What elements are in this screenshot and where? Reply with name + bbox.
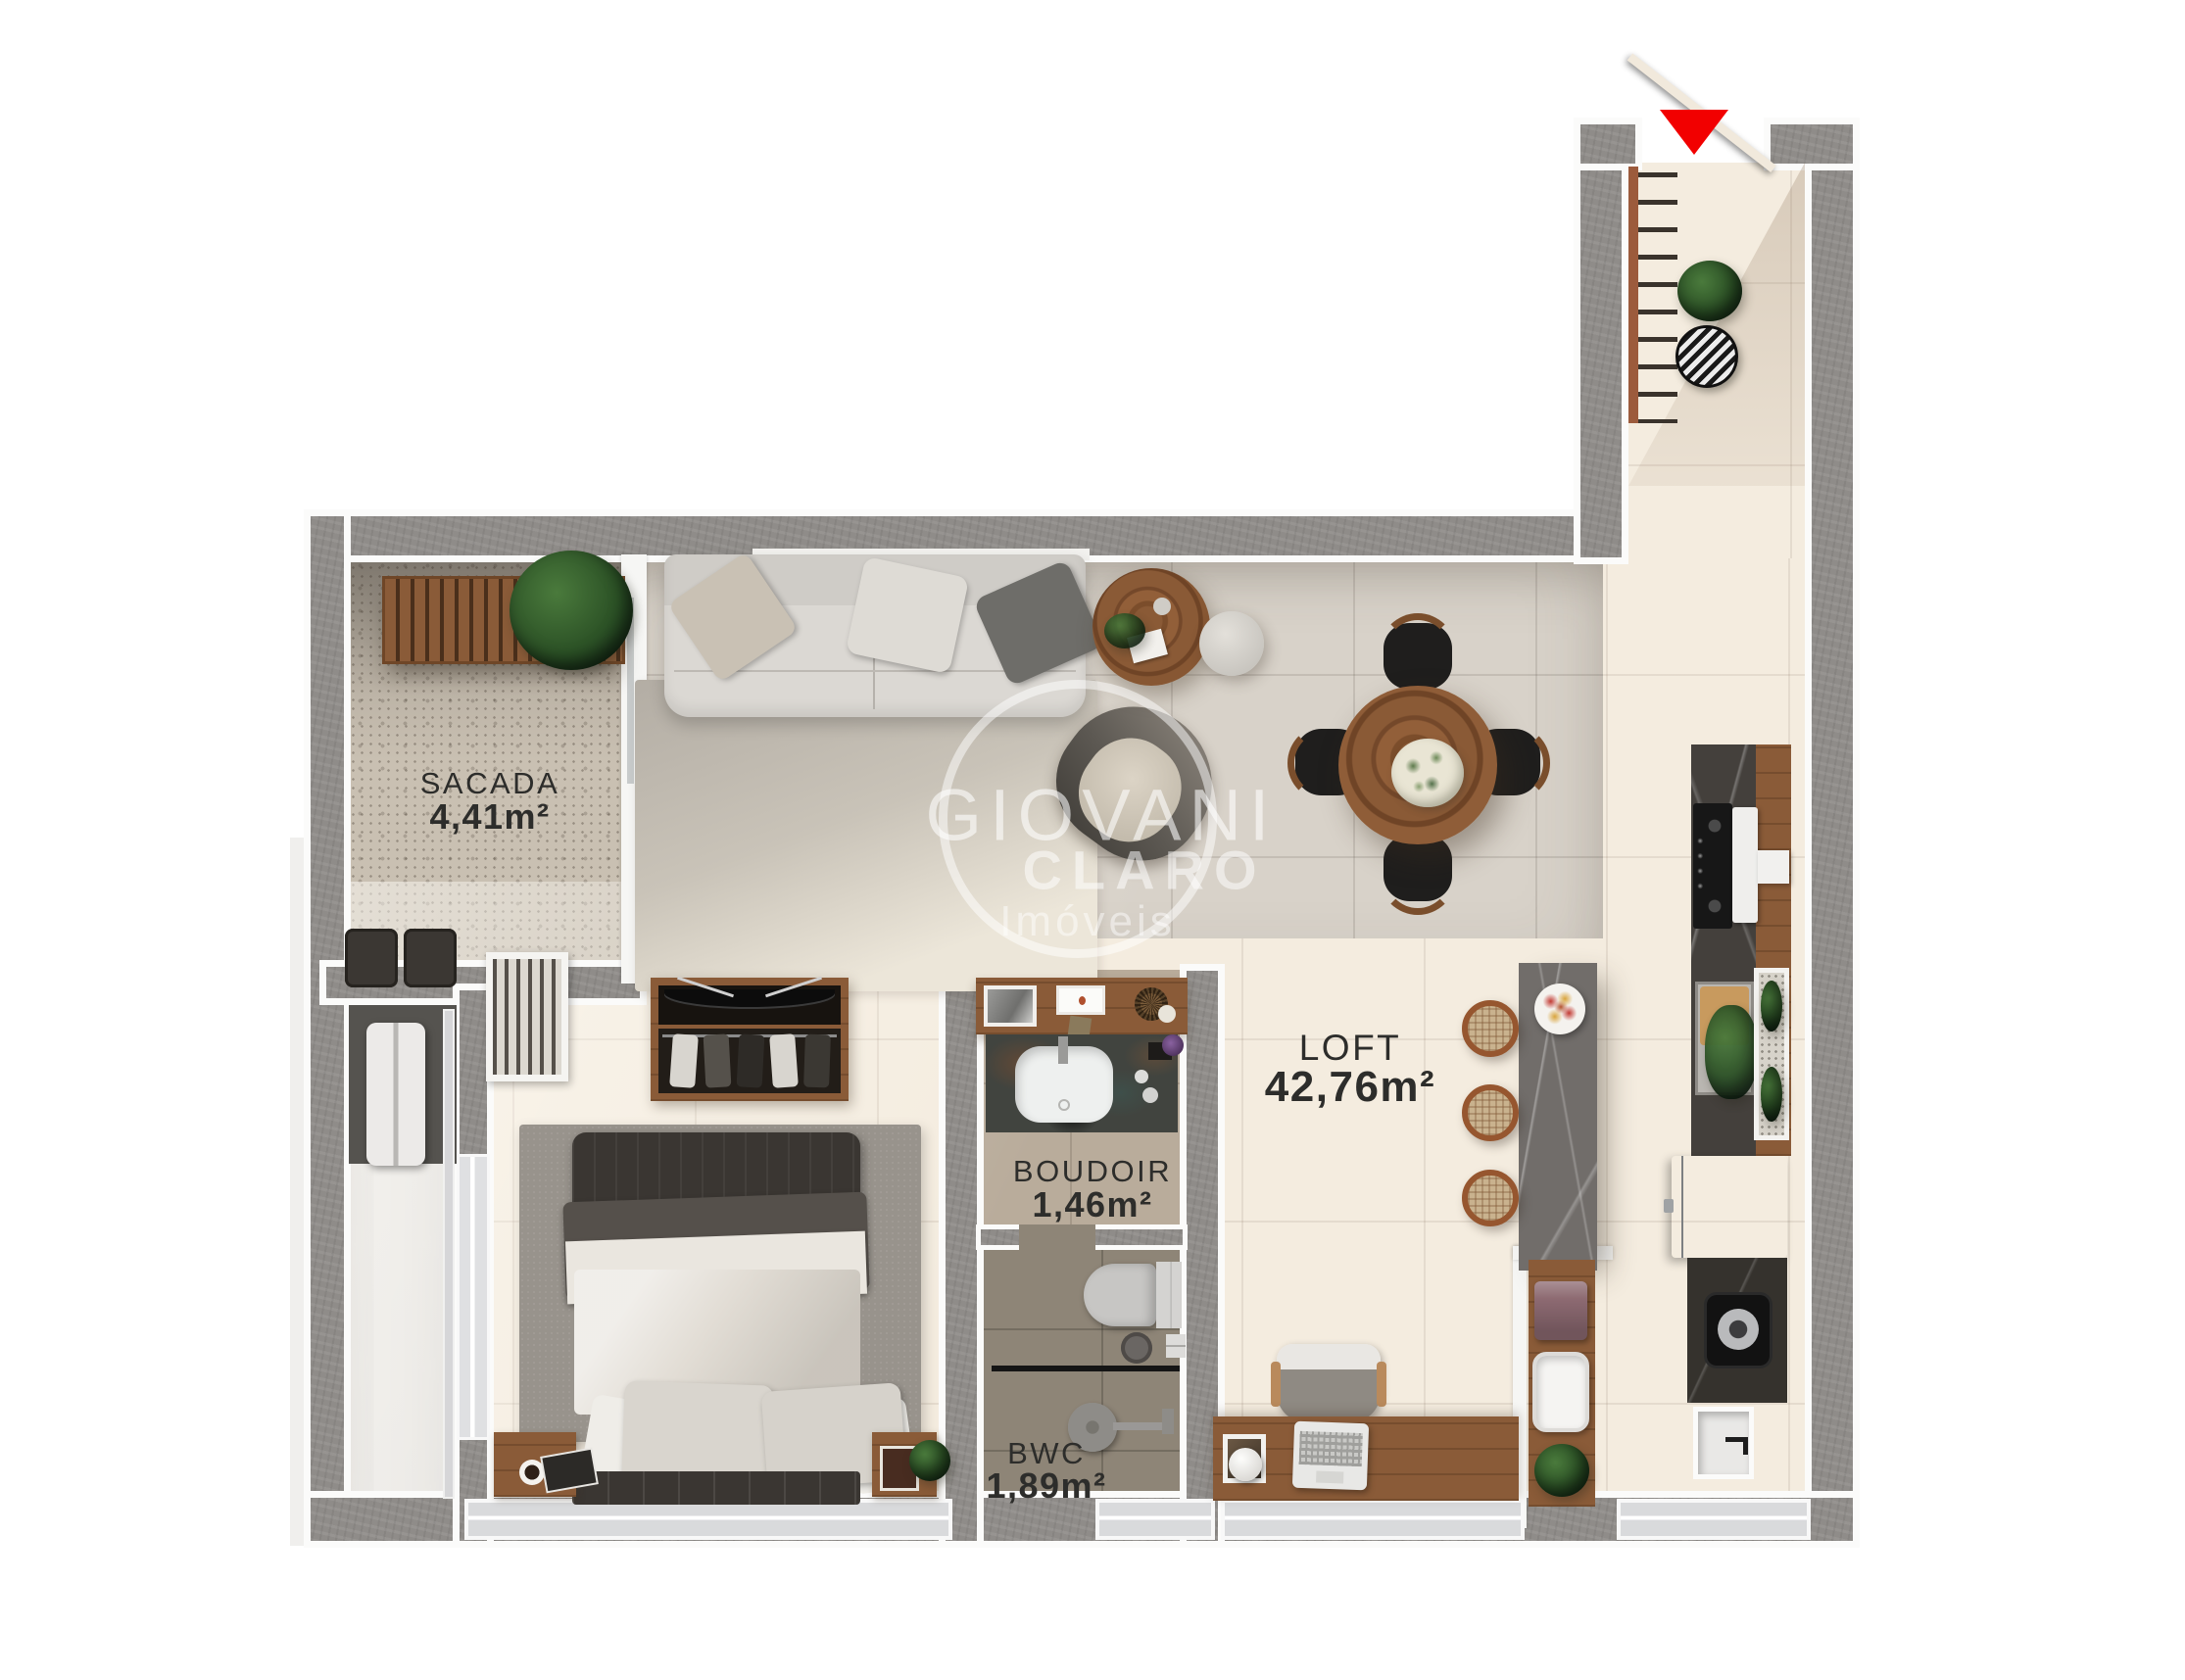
shelf-ball	[1158, 1005, 1176, 1023]
balcony-plant	[510, 551, 633, 670]
watermark-tagline: Imóveis	[999, 897, 1176, 946]
laptop-keyboard	[1299, 1431, 1363, 1466]
shaft-window	[457, 1154, 490, 1440]
desk-chair	[1277, 1344, 1381, 1422]
folded-towels	[1534, 1281, 1587, 1340]
bar-stool	[1462, 1084, 1519, 1141]
shelf-tray	[1056, 985, 1105, 1015]
bar-stool	[1462, 1000, 1519, 1057]
laundry-plant	[1534, 1444, 1589, 1497]
hanging-clothes	[669, 1033, 699, 1088]
desk-chair-arm	[1377, 1362, 1386, 1407]
toilet-tank	[1156, 1262, 1182, 1328]
side-table-white	[1199, 611, 1264, 676]
laundry-faucet-stem	[1743, 1437, 1748, 1455]
counter-planter	[1754, 968, 1789, 1140]
nightstand-plant	[909, 1440, 950, 1481]
balcony-lounge-chair	[345, 929, 398, 987]
sink-drain	[1058, 1099, 1070, 1111]
desk-chair-arm	[1271, 1362, 1281, 1407]
counter-box	[1758, 850, 1789, 884]
coffee-table-ball	[1153, 598, 1171, 615]
shelf-art-frame	[984, 985, 1037, 1027]
vanity-flower	[1162, 1034, 1184, 1056]
planter-plant	[1761, 1067, 1782, 1122]
desk-window	[1221, 1499, 1525, 1540]
kitchen-window	[1617, 1499, 1811, 1540]
bwc-door-opening	[1019, 1224, 1095, 1250]
coffee-table-sprig	[1104, 613, 1145, 648]
boudoir-shelf	[976, 978, 1188, 1034]
entry-plant	[1677, 261, 1742, 321]
vanity-jar	[1142, 1087, 1158, 1103]
vanity-jar	[1135, 1070, 1148, 1083]
laptop	[1292, 1421, 1369, 1491]
fruit-plate	[1534, 984, 1585, 1034]
corridor-slat-rungs	[1638, 172, 1677, 423]
shaft-door-track	[443, 1009, 455, 1499]
tray-dot	[1079, 996, 1086, 1005]
bwc-window	[1095, 1499, 1215, 1540]
bedroom-window	[464, 1499, 952, 1540]
room-area-bwc: 1,89m²	[986, 1465, 1106, 1507]
vanity-counter	[986, 1034, 1178, 1132]
laundry-tub-sink	[1693, 1407, 1754, 1479]
fridge-handle	[1664, 1199, 1674, 1213]
toilet-bowl	[1084, 1264, 1156, 1326]
hanging-clothes	[769, 1033, 799, 1088]
balcony-lounge-chair	[404, 929, 457, 987]
ac-condenser-unit	[366, 1023, 425, 1166]
corridor-wood-panel	[1628, 167, 1638, 423]
floor-plan: SACADA 4,41m² LOFT 42,76m² BOUDOIR 1,46m…	[0, 0, 2185, 1680]
bed-headboard	[572, 1471, 860, 1505]
slat-screen	[486, 952, 568, 1081]
room-area-sacada: 4,41m²	[429, 796, 550, 838]
waste-bin	[1121, 1332, 1152, 1364]
room-area-loft: 42,76m²	[1265, 1063, 1435, 1112]
shower-valve	[1162, 1409, 1174, 1434]
wall-corridor-left	[1574, 118, 1628, 564]
coffee-mug	[519, 1460, 545, 1485]
planter-plant	[1761, 981, 1782, 1032]
dining-chair-armrest	[1380, 839, 1456, 915]
wall-entry-stub-left	[1574, 118, 1642, 170]
toilet-paper-holder	[1166, 1334, 1186, 1358]
hanging-clothes	[803, 1034, 831, 1088]
dining-centerpiece-flowers	[1391, 739, 1464, 807]
counter-shelf	[1732, 807, 1758, 923]
laptop-trackpad	[1316, 1471, 1343, 1484]
hanging-clothes	[737, 1033, 765, 1087]
coffee-table-wood	[1092, 568, 1210, 686]
watermark-brand-line2: CLARO	[1022, 839, 1266, 902]
cooktop	[1693, 803, 1732, 929]
sink-herbs	[1705, 1005, 1758, 1099]
wall-right	[1805, 118, 1860, 1548]
wardrobe	[651, 978, 849, 1101]
entry-basket	[1675, 325, 1738, 388]
shower-glass-partition	[992, 1366, 1180, 1371]
bar-stool	[1462, 1170, 1519, 1226]
entrance-arrow-icon	[1660, 110, 1728, 155]
dining-chair-armrest	[1380, 613, 1456, 690]
washer-drum	[1718, 1309, 1759, 1350]
wall-entry-stub-right	[1764, 118, 1860, 170]
laundry-basket	[1532, 1352, 1589, 1432]
desk-lamp	[1229, 1448, 1262, 1481]
washing-machine	[1707, 1295, 1770, 1366]
wall-left	[304, 509, 351, 1548]
room-area-boudoir: 1,46m²	[1032, 1184, 1152, 1225]
fridge	[1672, 1156, 1787, 1258]
hanging-clothes	[704, 1033, 732, 1087]
vanity-faucet	[1058, 1036, 1068, 1064]
